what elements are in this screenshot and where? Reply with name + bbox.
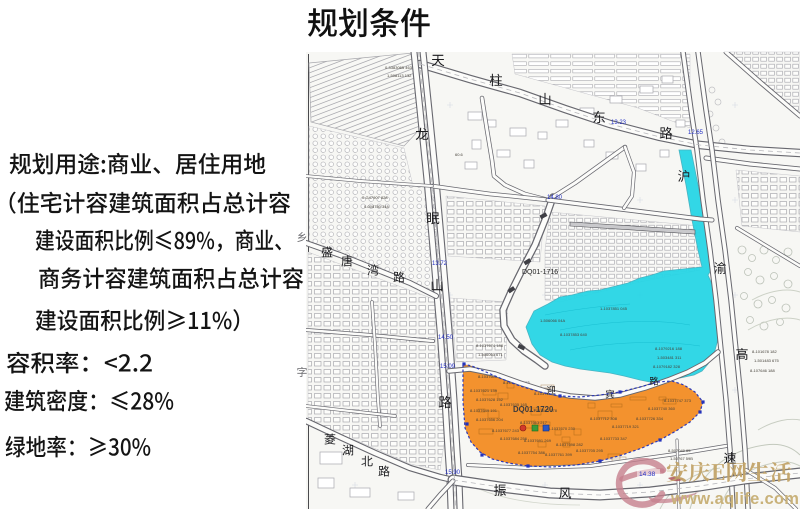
svg-text:DQ01-1720: DQ01-1720: [513, 405, 554, 414]
svg-text:1-503481 311: 1-503481 311: [657, 355, 682, 360]
svg-text:8-1037712 308: 8-1037712 308: [590, 416, 618, 421]
svg-text:www.aqlife.com: www.aqlife.com: [670, 490, 799, 508]
svg-text:8-1037740 360: 8-1037740 360: [648, 406, 676, 411]
svg-text:8-1037663 217: 8-1037663 217: [520, 420, 548, 425]
svg-text:8-1037670 230: 8-1037670 230: [548, 426, 576, 431]
svg-text:8-1037726 334: 8-1037726 334: [636, 416, 664, 421]
svg-text:8-1037853 640: 8-1037853 640: [560, 332, 588, 337]
svg-text:14.38: 14.38: [639, 471, 656, 478]
svg-text:0-3383065 463: 0-3383065 463: [385, 65, 413, 70]
svg-text:8-1037649 191: 8-1037649 191: [470, 408, 498, 413]
svg-text:8-1037761 399: 8-1037761 399: [545, 452, 573, 457]
svg-text:8-1037691 269: 8-1037691 269: [524, 438, 552, 443]
svg-text:8-1037747 373: 8-1037747 373: [664, 398, 692, 403]
svg-text:15.90: 15.90: [445, 470, 461, 476]
svg-text:DQ01-1716: DQ01-1716: [522, 269, 558, 276]
svg-text:13.23: 13.23: [611, 120, 627, 126]
svg-text:14.50: 14.50: [438, 335, 454, 341]
svg-text:8-1037705 295: 8-1037705 295: [576, 448, 604, 453]
svg-text:8-1079182 328: 8-1079182 328: [653, 364, 681, 369]
svg-text:1-50767 59B: 1-50767 59B: [670, 456, 693, 461]
svg-text:8-1037621 139: 8-1037621 139: [470, 388, 498, 393]
svg-text:8-1037656 204: 8-1037656 204: [476, 417, 504, 422]
svg-text:8-107646 188: 8-107646 188: [750, 368, 775, 373]
svg-text:8-1037674 188: 8-1037674 188: [476, 343, 504, 348]
svg-text:8-1079216 188: 8-1079216 188: [655, 346, 683, 351]
svg-text:8-507049 65: 8-507049 65: [668, 448, 691, 453]
svg-text:1-1037851 045: 1-1037851 045: [600, 306, 628, 311]
svg-text:15:09: 15:09: [440, 364, 456, 370]
svg-text:8-1037719 321: 8-1037719 321: [612, 424, 640, 429]
svg-text:8-101678 182: 8-101678 182: [752, 349, 777, 354]
svg-text:0-G47907 828: 0-G47907 828: [362, 195, 388, 200]
svg-text:1-506066 04A: 1-506066 04A: [540, 318, 565, 323]
svg-text:12.65: 12.65: [688, 130, 704, 136]
svg-text:14.80: 14.80: [547, 195, 563, 201]
svg-text:8-1037754 386: 8-1037754 386: [518, 450, 546, 455]
svg-text:8-1037698 282: 8-1037698 282: [556, 442, 584, 447]
svg-text:13.72: 13.72: [432, 261, 448, 267]
svg-text:8-1037677 243: 8-1037677 243: [492, 428, 520, 433]
svg-text:1-501483 675: 1-501483 675: [754, 358, 779, 363]
svg-text:60.6: 60.6: [455, 152, 464, 157]
svg-text:1-508113 132: 1-508113 132: [387, 73, 412, 78]
svg-text:8-1037733 347: 8-1037733 347: [600, 436, 628, 441]
svg-text:0-008780 348: 0-008780 348: [364, 204, 389, 209]
svg-text:1-506063 671: 1-506063 671: [478, 352, 503, 357]
